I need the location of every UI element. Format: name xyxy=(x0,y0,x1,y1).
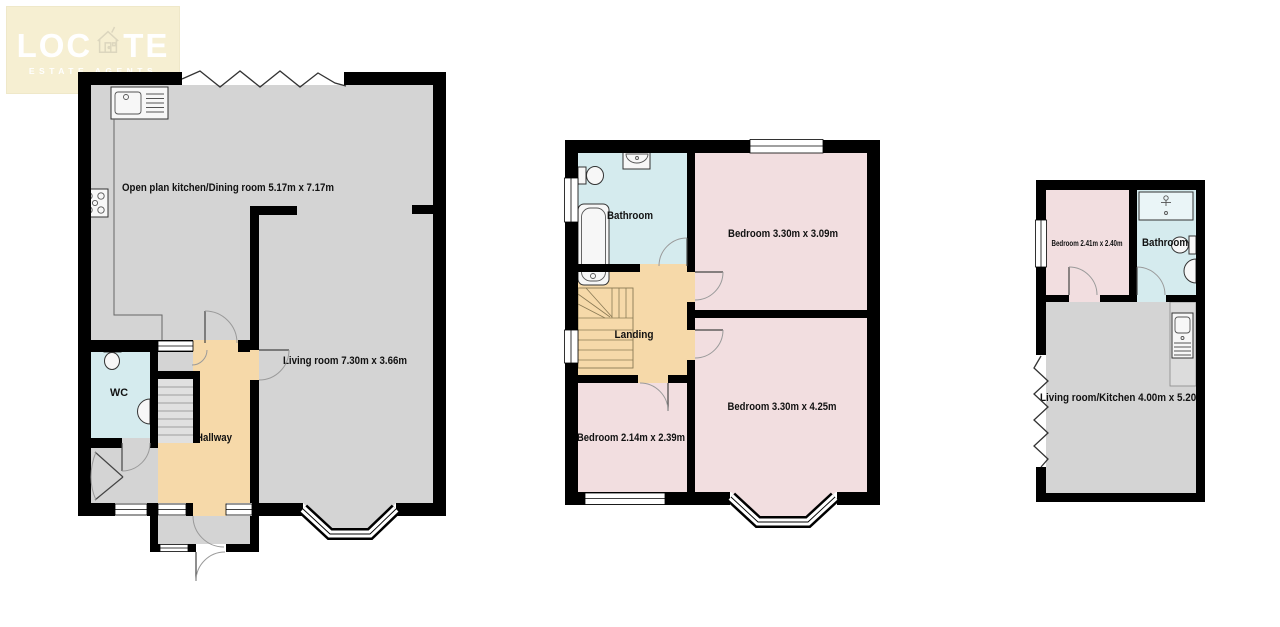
logo-house-icon xyxy=(94,25,122,62)
bath-icon xyxy=(578,204,609,285)
wc-label: WC xyxy=(110,387,128,399)
bedroom-front-label: Bedroom 3.30m x 3.09m xyxy=(728,228,838,240)
toilet-icon xyxy=(578,167,604,185)
landing-floor xyxy=(578,272,687,375)
ground-floor-plan: Open plan kitchen/Dining room 5.17m x 7.… xyxy=(70,60,470,600)
stairs xyxy=(158,379,193,443)
kitchen-dining-label: Open plan kitchen/Dining room 5.17m x 7.… xyxy=(122,182,334,194)
living-room-label: Living room 7.30m x 3.66m xyxy=(283,355,407,367)
logo-text-pre: LOC xyxy=(17,29,93,62)
bathroom-sink-icon xyxy=(623,151,650,169)
logo-brand: LOC TE xyxy=(17,25,170,62)
kitchen-sink-icon xyxy=(1170,302,1196,386)
bedroom-back-label: Bedroom 3.30m x 4.25m xyxy=(728,401,837,413)
bedroom-small-label: Bedroom 2.14m x 2.39m xyxy=(577,432,685,444)
hallway-floor xyxy=(193,350,250,503)
logo-text-post: TE xyxy=(123,29,169,62)
kitchen-dining-floor xyxy=(91,85,433,503)
annex-living-label: Living room/Kitchen 4.00m x 5.20m xyxy=(1040,392,1205,404)
landing-label: Landing xyxy=(615,329,654,341)
bathroom-label: Bathroom xyxy=(607,210,653,222)
annex-bedroom-label: Bedroom 2.41m x 2.40m xyxy=(1052,239,1123,248)
annex-floor-plan: Bedroom 2.41m x 2.40m Bathroom Living ro… xyxy=(1025,170,1215,515)
first-floor-plan: Bathroom Bedroom 3.30m x 3.09m Landing B… xyxy=(550,130,895,540)
shower-icon xyxy=(1139,192,1193,220)
windows xyxy=(1036,220,1047,267)
zigzag-opening xyxy=(1034,356,1048,467)
hallway-label: Hallway xyxy=(196,432,233,444)
zigzag-opening xyxy=(182,71,346,87)
annex-bathroom-label: Bathroom xyxy=(1142,237,1188,249)
kitchen-sink-icon xyxy=(111,87,168,119)
